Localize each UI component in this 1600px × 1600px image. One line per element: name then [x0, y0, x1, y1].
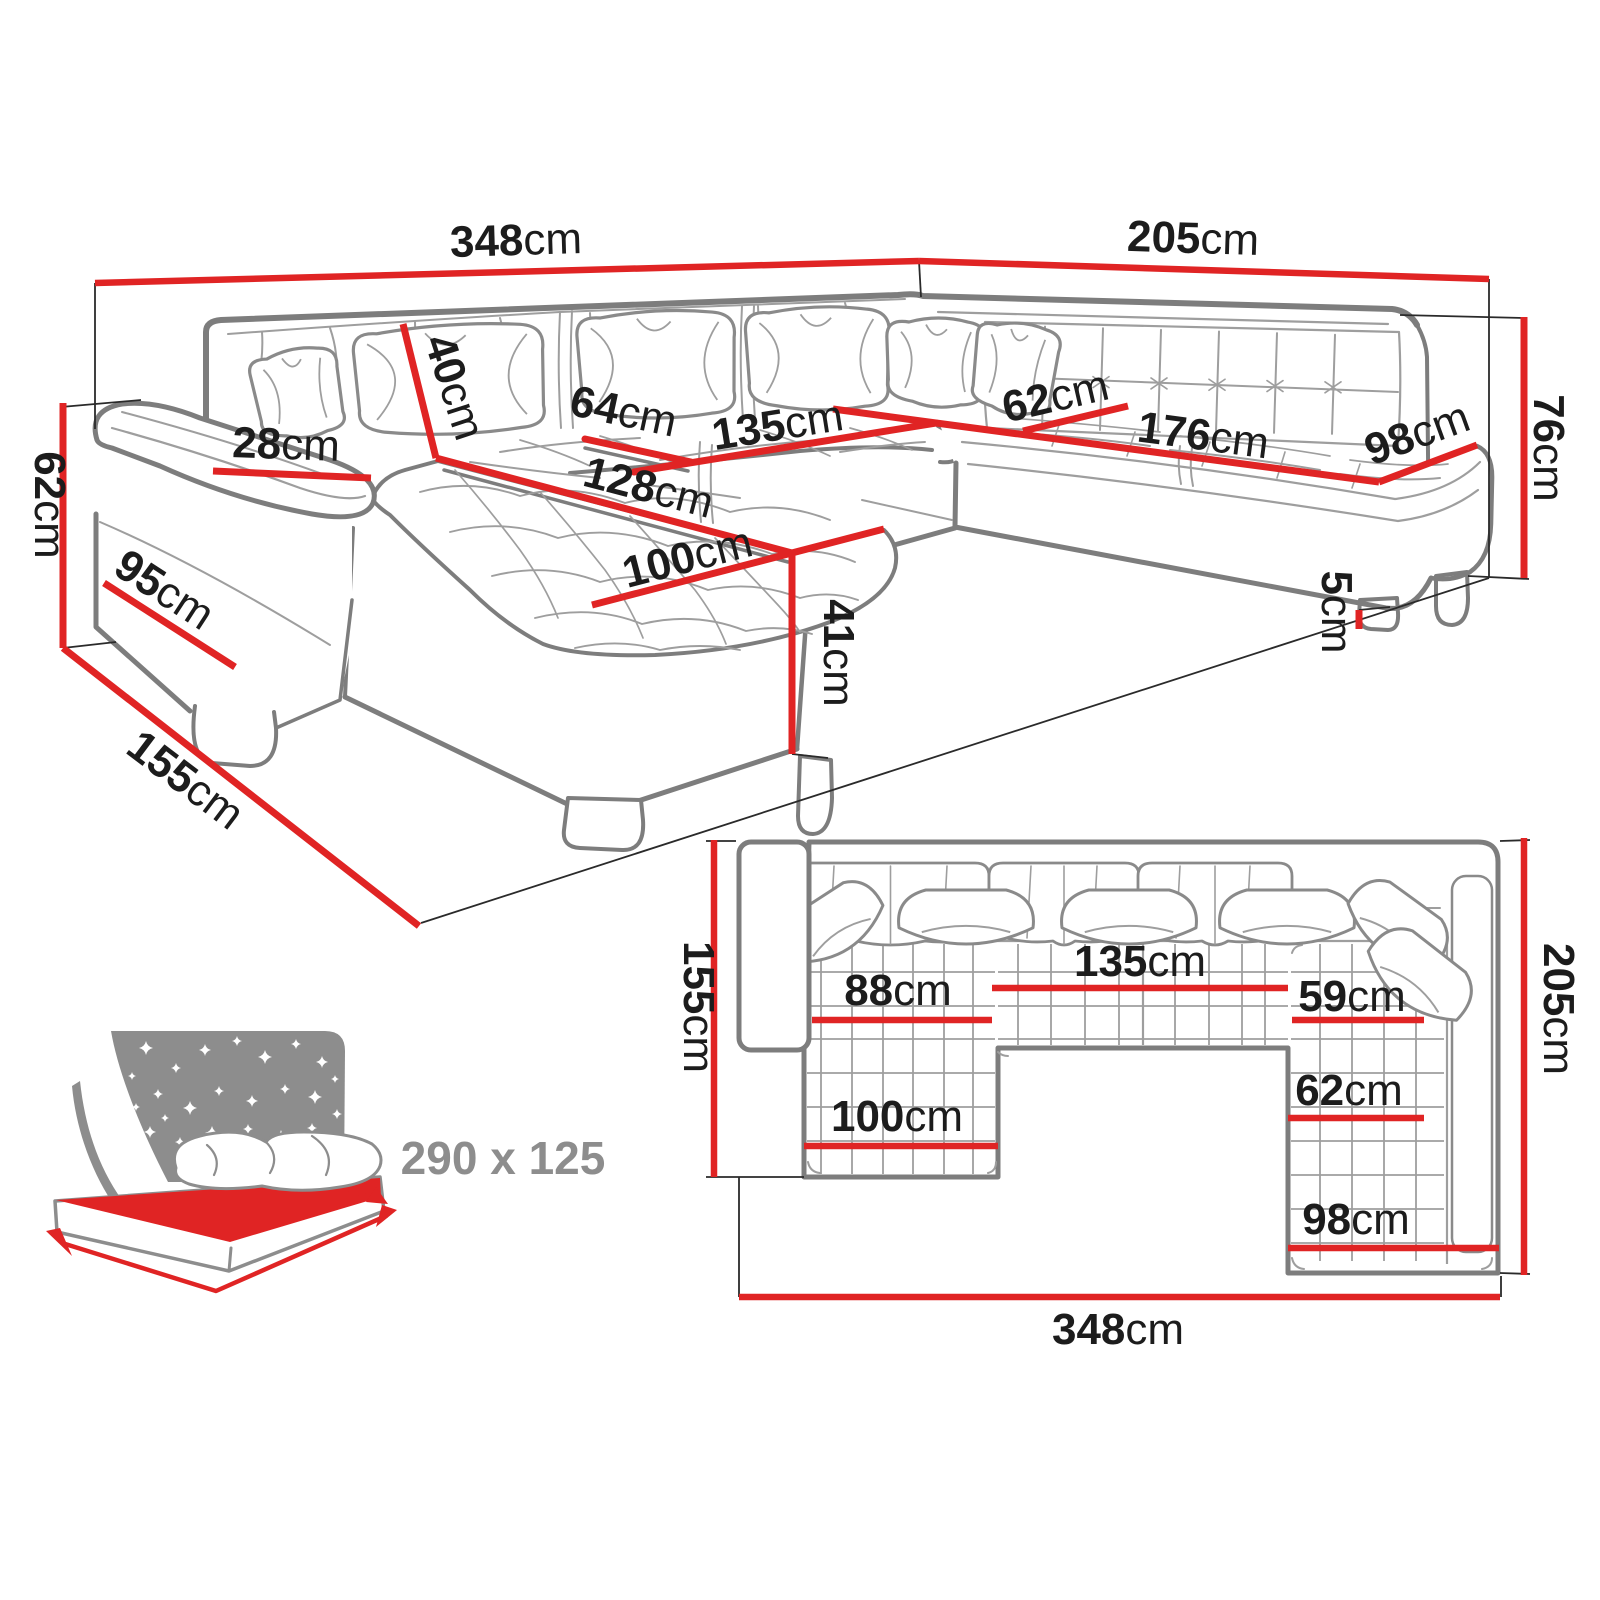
svg-text:348cm: 348cm: [1052, 1305, 1184, 1354]
svg-text:205cm: 205cm: [1534, 943, 1583, 1075]
svg-text:62cm: 62cm: [1295, 1066, 1403, 1115]
svg-text:98cm: 98cm: [1302, 1195, 1410, 1244]
svg-text:135cm: 135cm: [1074, 937, 1206, 986]
svg-text:41cm: 41cm: [814, 599, 863, 707]
svg-text:5cm: 5cm: [1312, 570, 1361, 653]
svg-text:290 x 125: 290 x 125: [401, 1132, 606, 1184]
svg-text:59cm: 59cm: [1298, 972, 1406, 1021]
svg-text:88cm: 88cm: [844, 966, 952, 1015]
svg-text:76cm: 76cm: [1524, 394, 1573, 502]
svg-text:348cm: 348cm: [449, 214, 582, 267]
svg-text:155cm: 155cm: [674, 941, 723, 1073]
svg-text:62cm: 62cm: [25, 451, 74, 559]
svg-text:28cm: 28cm: [231, 418, 340, 471]
svg-text:205cm: 205cm: [1126, 212, 1260, 265]
svg-text:100cm: 100cm: [831, 1092, 963, 1141]
